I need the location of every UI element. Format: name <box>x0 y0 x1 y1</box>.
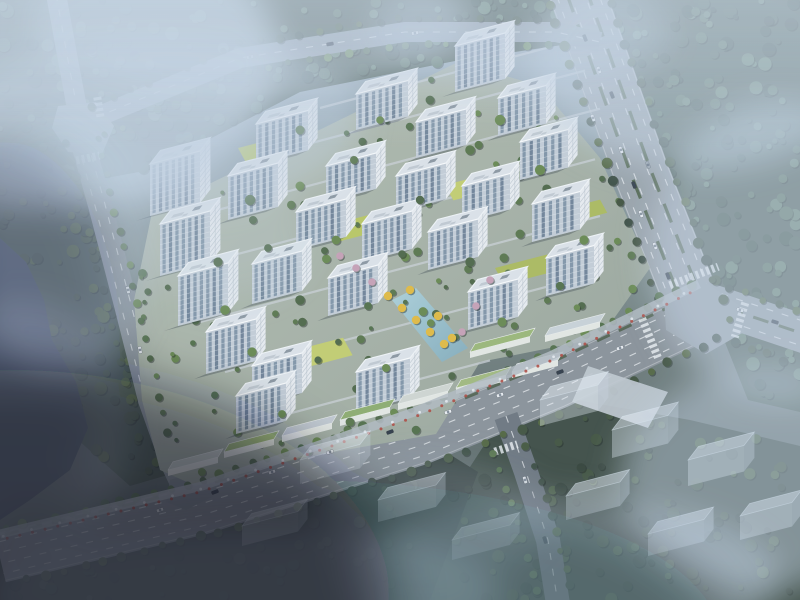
scene-svg <box>0 0 800 600</box>
layer-atmosphere <box>0 0 800 600</box>
aerial-render <box>0 0 800 600</box>
